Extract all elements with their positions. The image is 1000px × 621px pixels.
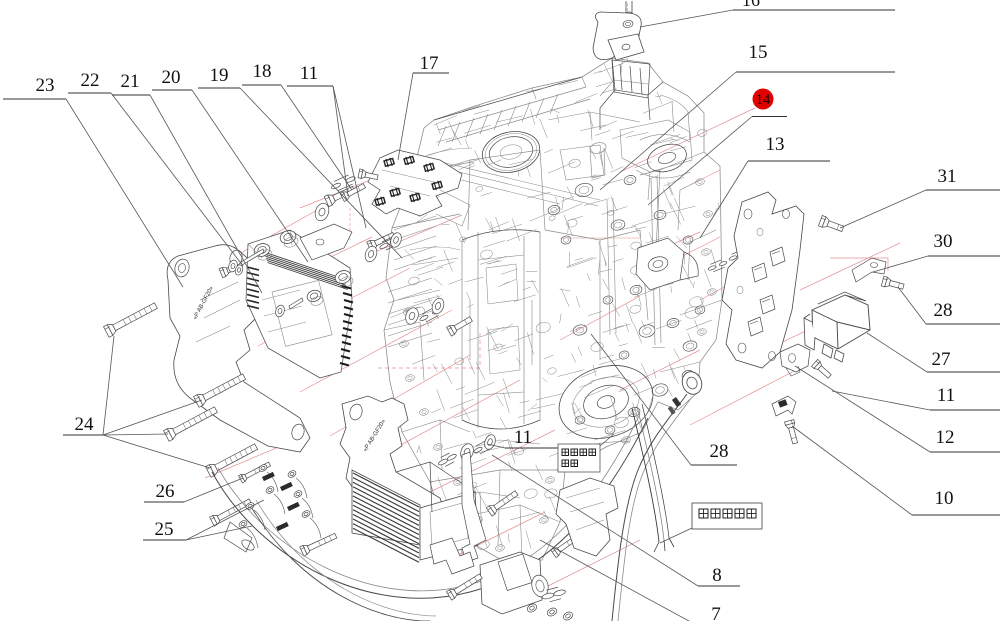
svg-text:7: 7 (711, 604, 721, 621)
svg-text:11: 11 (514, 427, 532, 448)
svg-text:15: 15 (749, 42, 768, 63)
svg-text:8: 8 (712, 565, 722, 586)
svg-text:30: 30 (934, 231, 953, 252)
svg-text:25: 25 (155, 519, 174, 540)
svg-text:13: 13 (766, 134, 785, 155)
svg-text:27: 27 (932, 349, 951, 370)
svg-text:17: 17 (420, 53, 439, 74)
svg-text:31: 31 (938, 166, 957, 187)
svg-text:10: 10 (935, 488, 954, 509)
svg-text:23: 23 (36, 75, 55, 96)
svg-text:21: 21 (121, 71, 140, 92)
svg-text:26: 26 (156, 481, 175, 502)
svg-text:28: 28 (710, 441, 729, 462)
svg-text:11: 11 (300, 63, 318, 84)
svg-text:28: 28 (934, 300, 953, 321)
svg-text:20: 20 (162, 67, 181, 88)
svg-text:11: 11 (937, 385, 955, 406)
svg-text:14: 14 (756, 92, 771, 108)
svg-text:22: 22 (81, 70, 100, 91)
svg-text:12: 12 (936, 427, 955, 448)
svg-text:18: 18 (253, 61, 272, 82)
svg-text:16: 16 (742, 0, 760, 10)
svg-text:24: 24 (75, 414, 95, 435)
svg-text:19: 19 (210, 65, 229, 86)
